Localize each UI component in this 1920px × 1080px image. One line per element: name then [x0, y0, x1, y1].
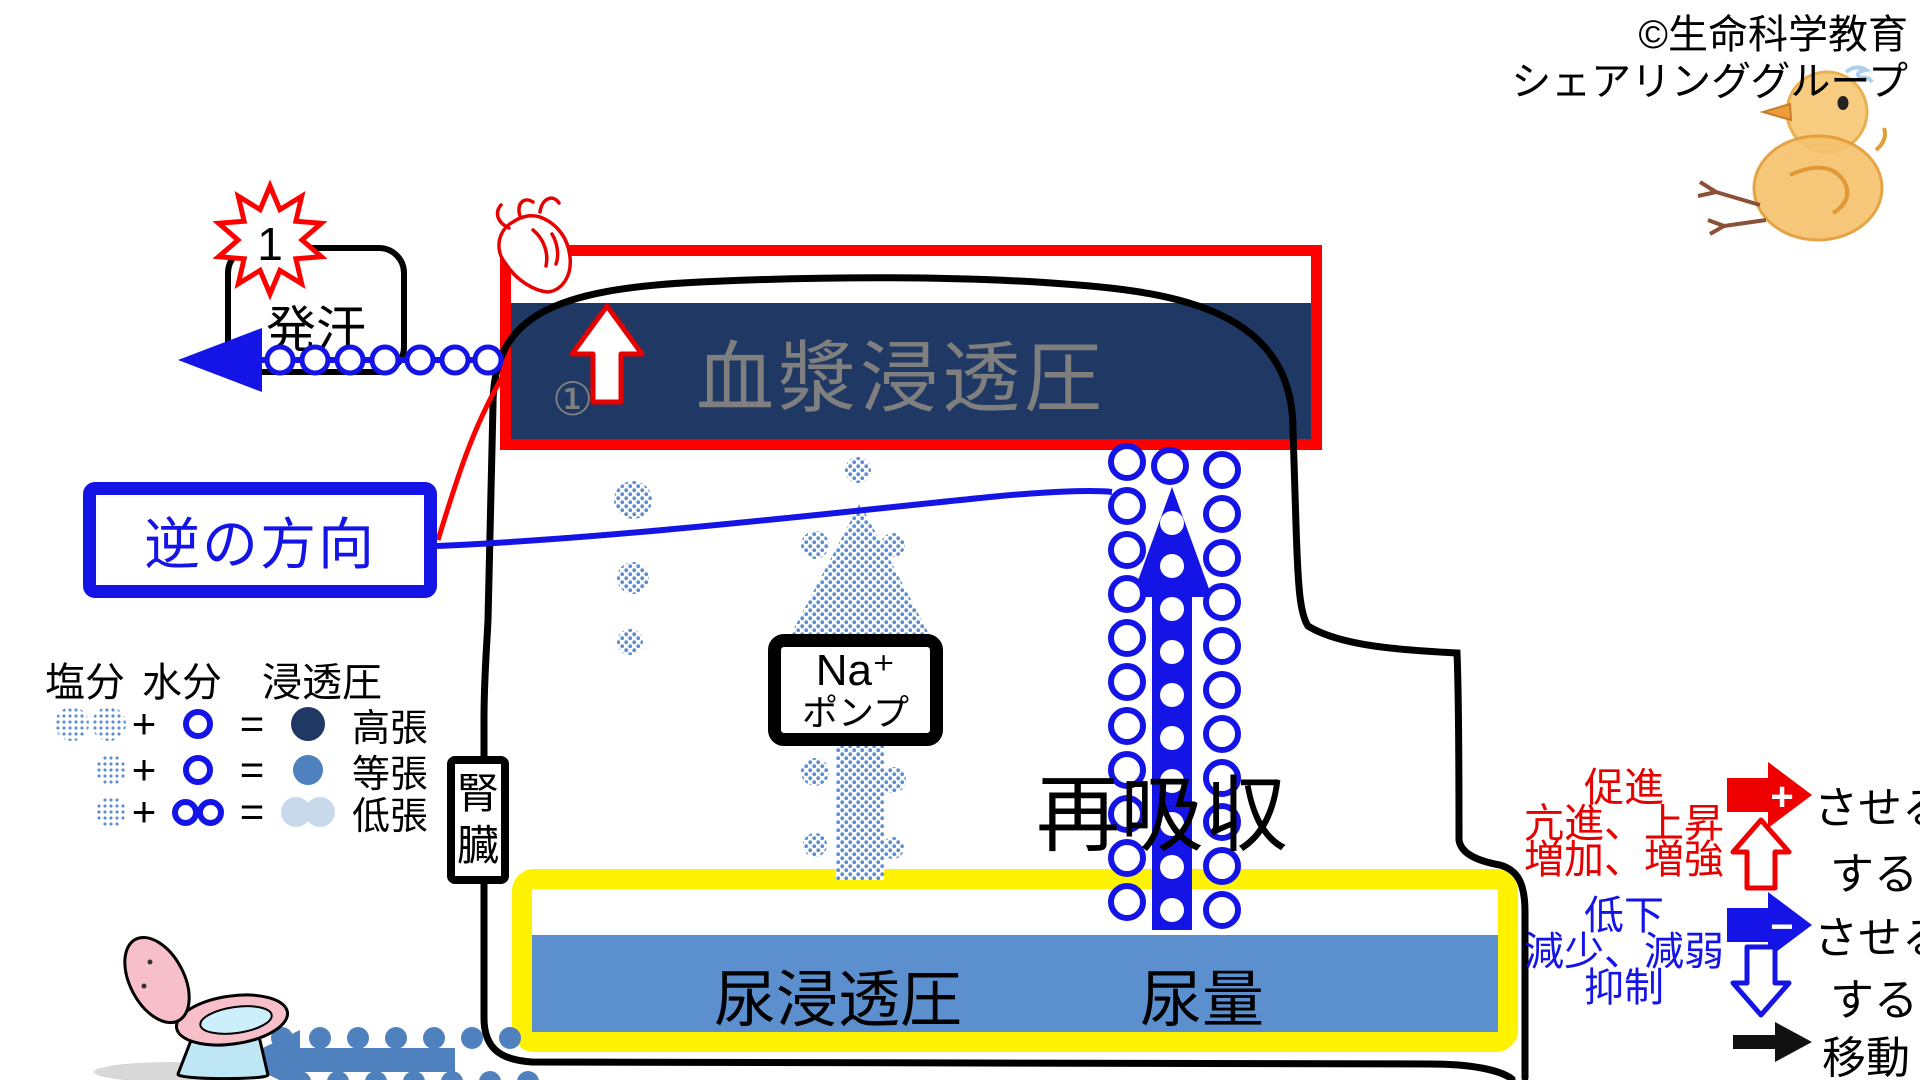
- key-cause-text-down: させる: [1814, 902, 1920, 966]
- sodium-pump-line2: ポンプ: [802, 694, 909, 732]
- result-symbols: [270, 755, 346, 785]
- copyright-line2: シェアリンググループ: [1511, 59, 1908, 106]
- sodium-pump-line1: Na⁺: [816, 648, 895, 694]
- reverse-direction-box: 逆の方向: [83, 482, 437, 598]
- key-increase-do-arrow: [1733, 820, 1789, 888]
- salt-symbols: [48, 707, 126, 741]
- salt-particle-icon: [96, 755, 126, 785]
- water-symbols: [162, 709, 234, 739]
- excretion-arrow: [238, 1027, 539, 1080]
- key-decrease-line3: 抑制: [1524, 970, 1724, 1006]
- sweating-label: 発汗: [266, 305, 366, 355]
- key-decrease-words: 低下 減少、減弱 抑制: [1524, 898, 1724, 1006]
- key-cause-text-up: させる: [1814, 772, 1920, 836]
- key-increase-line1: 促進: [1524, 770, 1724, 806]
- key-decrease-line2: 減少、減弱: [1524, 934, 1724, 970]
- sweating-box: 発汗: [225, 245, 407, 375]
- salt-particle-icon: [92, 707, 126, 741]
- step-1-marker: ①: [552, 372, 593, 426]
- kidney-box: 腎 臓: [447, 756, 509, 884]
- result-symbols: [270, 707, 346, 741]
- hypotonic-label: 低張: [352, 785, 428, 840]
- reverse-direction-label: 逆の方向: [144, 500, 376, 581]
- key-decrease-do-arrow: [1733, 947, 1789, 1015]
- equals-sign: =: [234, 746, 270, 794]
- key-do-text-down: する: [1830, 964, 1918, 1028]
- water-symbols: [162, 799, 234, 826]
- plus-glyph: +: [1770, 775, 1793, 819]
- legend-row-hypertonic: + = 高張: [48, 702, 428, 746]
- copyright-note: ©生命科学教育 シェアリンググループ: [1511, 12, 1908, 106]
- reabsorption-label: 再吸収: [1036, 748, 1288, 869]
- salt-particle-icon: [55, 707, 89, 741]
- water-particle-icon: [197, 799, 224, 826]
- urine-water-band: 尿浸透圧 尿量: [532, 935, 1498, 1032]
- water-particle-icon: [183, 709, 213, 739]
- equals-sign: =: [234, 700, 270, 748]
- urine-osmotic-pressure-label: 尿浸透圧: [714, 949, 962, 1039]
- urine-box: 尿浸透圧 尿量: [512, 869, 1518, 1052]
- salt-symbols: [48, 755, 126, 785]
- key-increase-line3: 増加、増強: [1524, 842, 1724, 878]
- key-decrease-line1: 低下: [1524, 898, 1724, 934]
- isotonic-dot-icon: [293, 755, 323, 785]
- salt-particle-icon: [96, 797, 126, 827]
- sodium-pump-box: Na⁺ ポンプ: [768, 634, 943, 746]
- key-move-text: 移動: [1822, 1022, 1910, 1080]
- copyright-line1: ©生命科学教育: [1511, 12, 1908, 59]
- equals-sign: =: [234, 788, 270, 836]
- hypertonic-dot-icon: [291, 707, 325, 741]
- result-symbols: [270, 797, 346, 827]
- reverse-to-water-connector: [437, 491, 1112, 546]
- key-increase-line2: 亢進、上昇: [1524, 806, 1724, 842]
- key-increase-words: 促進 亢進、上昇 増加、増強: [1524, 770, 1724, 878]
- key-do-text-up: する: [1830, 838, 1918, 902]
- plasma-to-reverse-connector: [438, 374, 504, 540]
- plasma-osmotic-pressure-box: 血漿浸透圧: [500, 245, 1322, 450]
- legend-salt-header: 塩分: [45, 650, 125, 708]
- kidney-char-2: 臓: [457, 820, 499, 872]
- water-symbols: [162, 755, 234, 785]
- water-particle-icon: [172, 799, 199, 826]
- toilet-icon: [94, 927, 291, 1080]
- plus-sign: +: [126, 700, 162, 748]
- water-particle-icon: [183, 755, 213, 785]
- kidney-char-1: 腎: [457, 768, 499, 820]
- key-increase-cause-arrow: +: [1727, 762, 1812, 828]
- plus-sign: +: [126, 746, 162, 794]
- plus-sign: +: [126, 788, 162, 836]
- hypotonic-dot-icon: [305, 797, 335, 827]
- minus-glyph: −: [1770, 905, 1793, 949]
- legend-row-hypotonic: + = 低張: [48, 790, 428, 834]
- osmoregulation-diagram: ©生命科学教育 シェアリンググループ 発汗 血漿浸透圧 ① 逆の方向 塩分 水分…: [0, 0, 1920, 1080]
- salt-symbols: [48, 797, 126, 827]
- urine-volume-label: 尿量: [1140, 949, 1264, 1039]
- plasma-osmotic-pressure-label: 血漿浸透圧: [696, 316, 1106, 428]
- key-move-arrow: [1733, 1022, 1812, 1062]
- key-decrease-cause-arrow: −: [1727, 892, 1812, 958]
